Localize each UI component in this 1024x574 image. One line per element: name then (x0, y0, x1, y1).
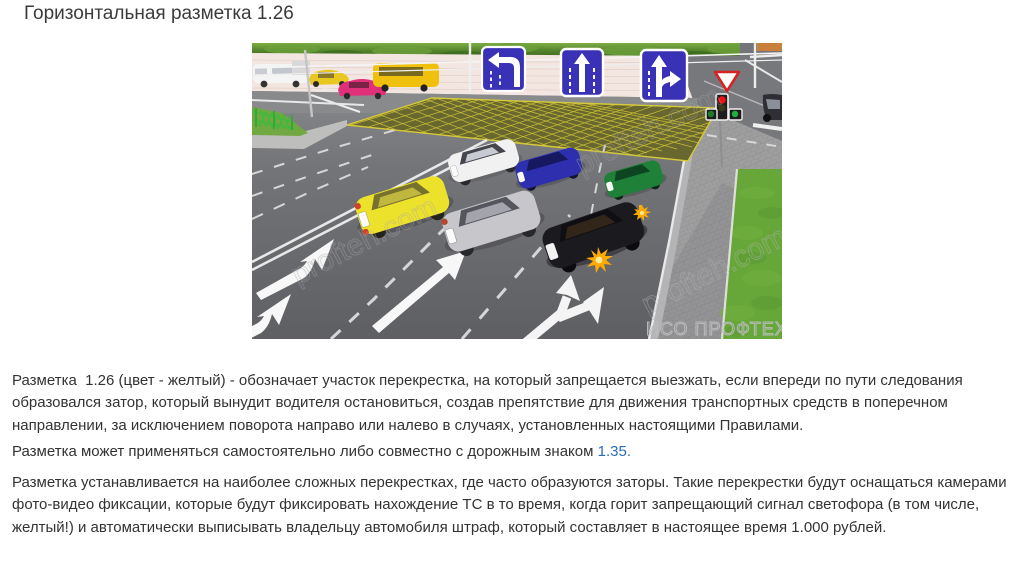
svg-text:ИСО ПРОФТЕХ: ИСО ПРОФТЕХ (646, 319, 782, 339)
